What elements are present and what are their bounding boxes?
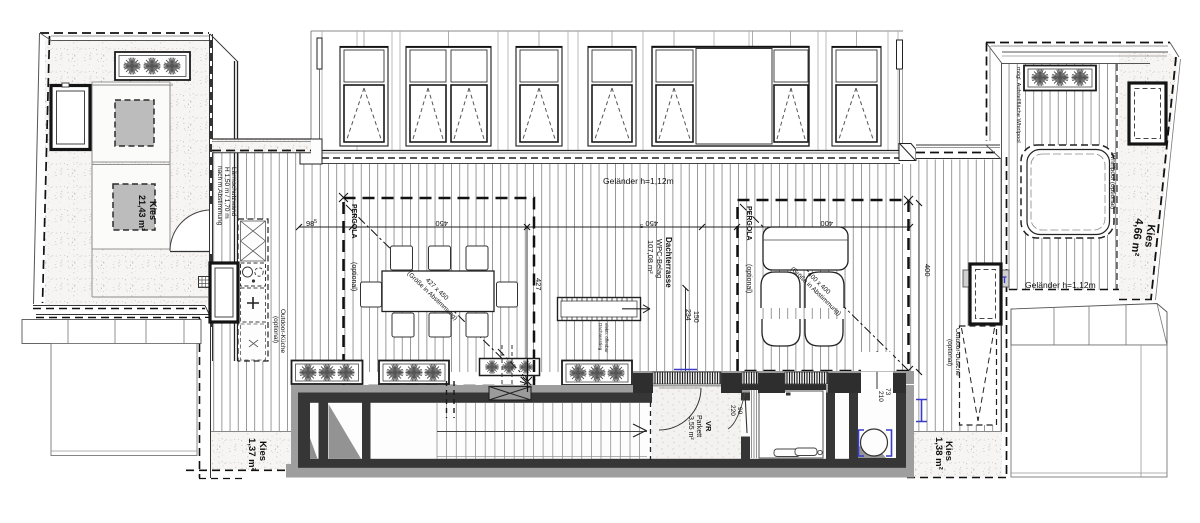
svg-text:150: 150 bbox=[692, 311, 699, 323]
svg-text:PERGOLA: PERGOLA bbox=[745, 206, 752, 241]
svg-text:elektr. öffenbar: elektr. öffenbar bbox=[604, 323, 609, 353]
svg-text:21,43 m²: 21,43 m² bbox=[137, 195, 147, 231]
svg-text:427: 427 bbox=[534, 278, 543, 291]
svg-text:3,55 m²: 3,55 m² bbox=[687, 416, 694, 440]
svg-text:73: 73 bbox=[884, 388, 891, 396]
svg-text:Dachausstieg: Dachausstieg bbox=[598, 323, 603, 351]
svg-text:WPC-Belag: WPC-Belag bbox=[655, 239, 664, 278]
svg-text:450: 450 bbox=[645, 219, 658, 228]
svg-text:Kies: Kies bbox=[148, 201, 158, 220]
svg-text:(optional): (optional) bbox=[946, 339, 953, 366]
svg-text:210: 210 bbox=[877, 391, 884, 402]
svg-text:Parkett: Parkett bbox=[695, 415, 702, 437]
svg-text:450: 450 bbox=[435, 219, 448, 228]
svg-text:400: 400 bbox=[923, 264, 932, 277]
svg-text:H 1,50 m / 1,70 m: H 1,50 m / 1,70 m bbox=[223, 167, 230, 219]
svg-text:1,38 m²: 1,38 m² bbox=[933, 437, 944, 470]
svg-text:220: 220 bbox=[729, 405, 736, 416]
svg-text:nach m.Abstimmung: nach m.Abstimmung bbox=[216, 166, 223, 226]
svg-text:(optional): (optional) bbox=[745, 264, 752, 293]
svg-text:Geländer h=1,12m: Geländer h=1,12m bbox=[1025, 280, 1096, 290]
svg-text:Geländer h=1,12m: Geländer h=1,12m bbox=[603, 176, 674, 186]
svg-text:mögl. Aufstellfläche Whirlpool: mögl. Aufstellfläche Whirlpool bbox=[1015, 67, 1021, 143]
svg-text:VR: VR bbox=[704, 421, 713, 432]
svg-text:234: 234 bbox=[684, 309, 691, 321]
svg-text:(optional): (optional) bbox=[272, 316, 279, 343]
svg-text:Kies: Kies bbox=[257, 441, 268, 461]
svg-text:PERGOLA: PERGOLA bbox=[350, 204, 357, 239]
svg-text:(optional): (optional) bbox=[350, 262, 357, 291]
svg-text:90: 90 bbox=[736, 407, 743, 415]
svg-text:Whirlpool (optional): Whirlpool (optional) bbox=[1109, 153, 1116, 209]
svg-text:Dachterrasse: Dachterrasse bbox=[664, 237, 673, 288]
svg-text:1,37 m²: 1,37 m² bbox=[246, 438, 257, 471]
svg-text:107,08 m²: 107,08 m² bbox=[646, 240, 655, 274]
svg-text:Lärmschutzwand: Lärmschutzwand bbox=[230, 167, 237, 217]
svg-text:Outdoor-Küche: Outdoor-Küche bbox=[279, 309, 286, 353]
svg-text:5: 5 bbox=[314, 219, 317, 225]
svg-text:5: 5 bbox=[640, 222, 643, 228]
